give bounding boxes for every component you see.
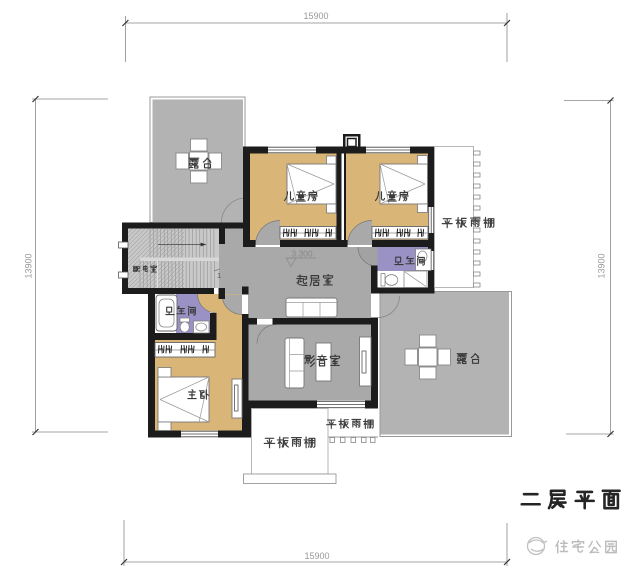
svg-text:13900: 13900 (24, 253, 34, 278)
svg-text:15900: 15900 (304, 551, 329, 561)
svg-text:15900: 15900 (303, 11, 328, 21)
svg-text:1: 1 (217, 271, 221, 280)
svg-text:3.300: 3.300 (291, 249, 313, 259)
svg-text:13900: 13900 (597, 253, 607, 278)
